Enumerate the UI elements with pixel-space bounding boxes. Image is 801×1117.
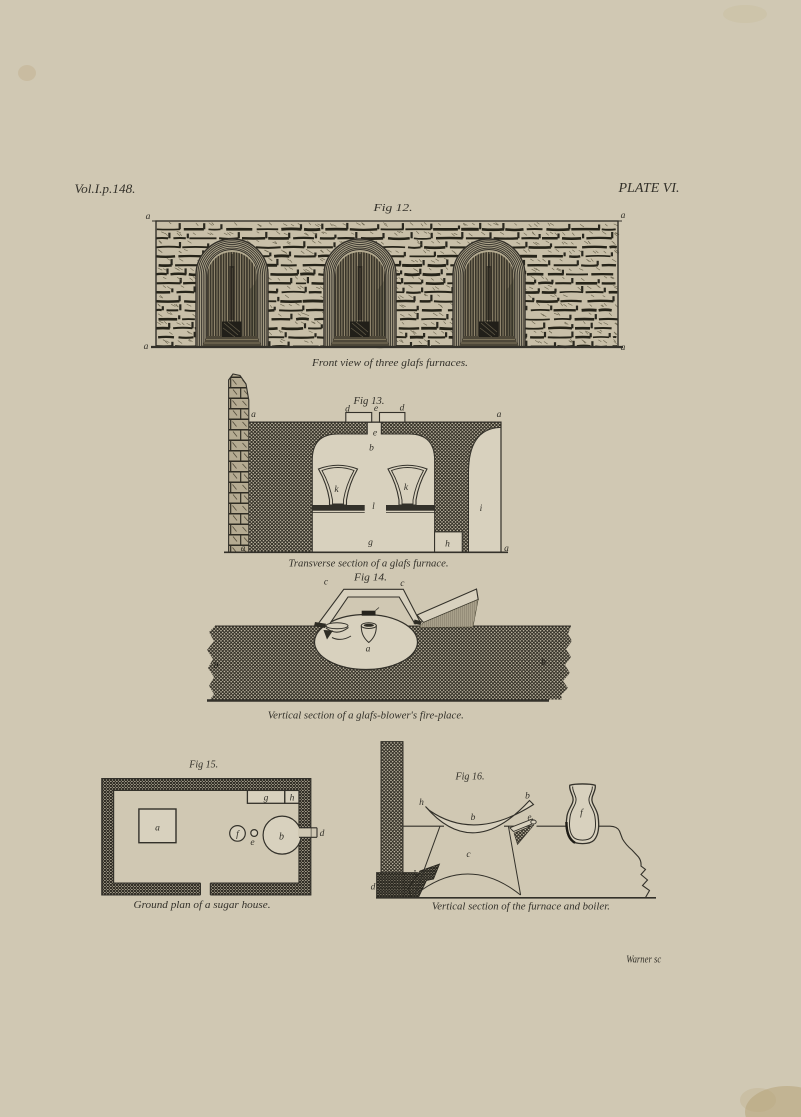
svg-text:a: a <box>621 343 626 353</box>
svg-text:l: l <box>372 502 375 512</box>
svg-text:e: e <box>250 838 254 848</box>
svg-text:a: a <box>497 410 502 420</box>
svg-text:Warner sc: Warner sc <box>626 955 661 966</box>
svg-text:b: b <box>541 658 546 668</box>
svg-text:d: d <box>400 404 405 414</box>
svg-text:a: a <box>366 645 371 655</box>
svg-text:Fig 14.: Fig 14. <box>353 572 387 584</box>
svg-text:Fig 13.: Fig 13. <box>353 395 385 407</box>
svg-text:Vol.I.p.148.: Vol.I.p.148. <box>75 182 136 196</box>
svg-text:b: b <box>279 832 284 843</box>
svg-text:h: h <box>445 540 450 550</box>
svg-text:b: b <box>525 792 530 802</box>
svg-text:b: b <box>214 661 219 671</box>
svg-text:d: d <box>320 829 325 839</box>
svg-text:e: e <box>528 812 532 822</box>
svg-text:Transverse section of a glafs: Transverse section of a glafs furnace. <box>289 558 449 570</box>
svg-text:a: a <box>155 824 160 834</box>
svg-text:d: d <box>371 883 376 893</box>
svg-text:a: a <box>144 342 149 352</box>
svg-text:b: b <box>471 813 476 823</box>
svg-text:Vertical section of a glafs-bl: Vertical section of a glafs-blower's fir… <box>268 710 464 722</box>
svg-text:Fig 15.: Fig 15. <box>188 759 218 771</box>
svg-text:Fig 12.: Fig 12. <box>372 202 412 214</box>
svg-text:Fig 16.: Fig 16. <box>455 771 485 783</box>
svg-text:i: i <box>480 504 483 514</box>
svg-text:g: g <box>368 538 373 548</box>
svg-text:g: g <box>264 794 269 804</box>
svg-text:a: a <box>504 544 509 554</box>
svg-text:h: h <box>419 798 424 808</box>
svg-text:h: h <box>290 794 295 804</box>
svg-text:Front view of three glafs furn: Front view of three glafs furnaces. <box>311 357 468 369</box>
svg-text:b: b <box>369 444 374 454</box>
svg-text:d: d <box>345 405 350 415</box>
svg-text:Ground plan of a sugar house.: Ground plan of a sugar house. <box>134 899 271 911</box>
svg-text:a: a <box>251 410 256 420</box>
svg-text:a: a <box>146 212 151 222</box>
svg-text:Vertical section of the furnac: Vertical section of the furnace and boil… <box>432 901 610 913</box>
svg-text:a: a <box>621 211 626 221</box>
svg-text:PLATE VI.: PLATE VI. <box>617 180 679 195</box>
svg-text:e: e <box>374 404 378 414</box>
svg-text:a: a <box>241 544 246 554</box>
svg-text:e: e <box>373 429 377 439</box>
